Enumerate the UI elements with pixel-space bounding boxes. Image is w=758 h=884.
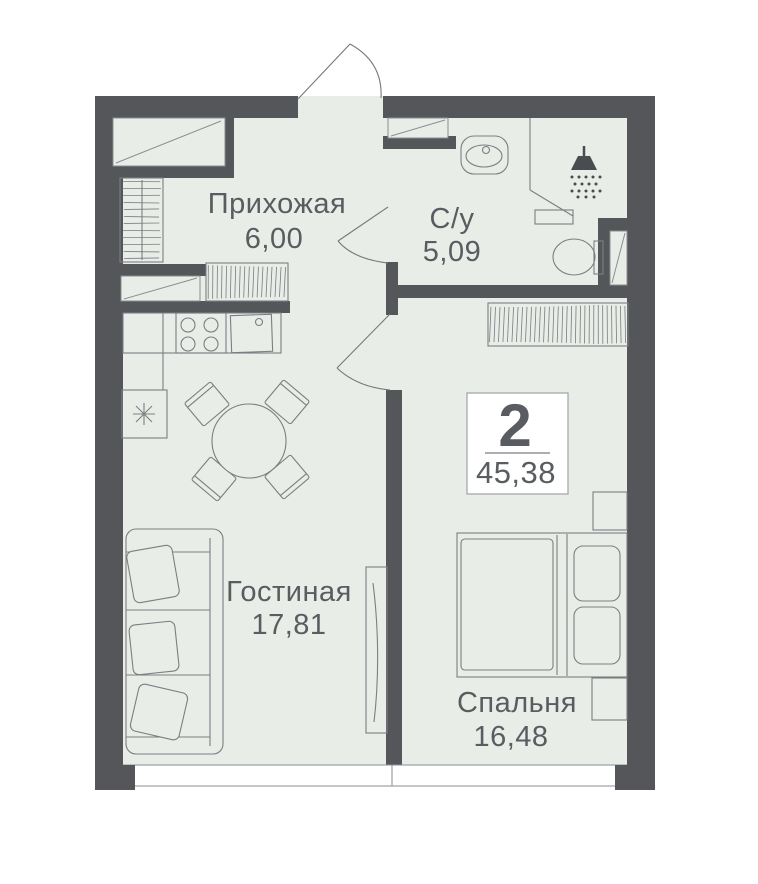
pillow-icon: [126, 544, 180, 603]
pillow-icon: [129, 621, 180, 676]
entrance-opening: [298, 96, 383, 118]
pillow-icon: [574, 546, 620, 601]
room-label-bedroom: Спальня: [457, 687, 577, 719]
entrance-door-icon: [298, 44, 381, 99]
room-label-bathroom: С/у: [430, 203, 475, 235]
room-area-bathroom: 5,09: [423, 236, 481, 268]
room-label-living: Гостиная: [226, 576, 352, 608]
pillow-icon: [574, 607, 620, 664]
unit-area-box: 2 45,38: [467, 392, 568, 494]
room-area-living: 17,81: [251, 609, 326, 641]
dining-table-icon: [212, 404, 286, 478]
room-label-hallway: Прихожая: [208, 188, 346, 220]
window-band-icon: [95, 765, 655, 790]
total-area: 45,38: [476, 455, 556, 490]
floor-plan: 2 45,38 Прихожая 6,00 С/у 5,09 Гостиная …: [0, 0, 758, 884]
room-area-bedroom: 16,48: [473, 721, 548, 753]
room-area-hallway: 6,00: [245, 223, 303, 255]
rooms-count: 2: [498, 392, 531, 459]
pillow-icon: [129, 683, 189, 741]
